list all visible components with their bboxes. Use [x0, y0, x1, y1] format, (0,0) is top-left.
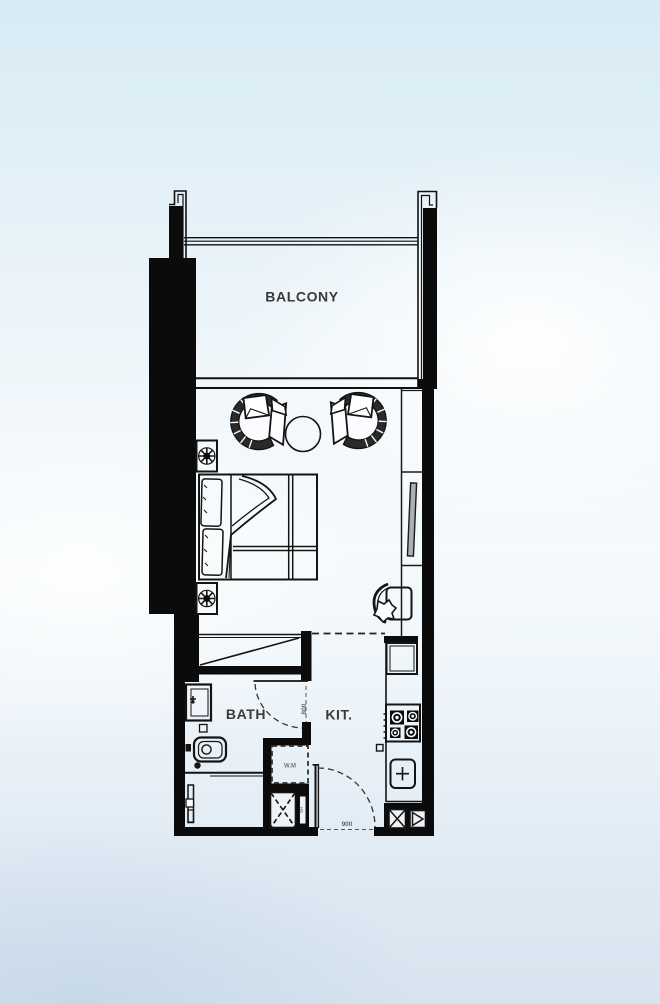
- svg-text:W.M: W.M: [284, 764, 296, 770]
- svg-text:800: 800: [301, 703, 308, 714]
- svg-text:SH: SH: [299, 807, 304, 813]
- svg-text:BATH: BATH: [226, 706, 266, 722]
- svg-text:BALCONY: BALCONY: [265, 289, 338, 305]
- svg-text:KIT.: KIT.: [325, 707, 352, 723]
- svg-text:900: 900: [342, 821, 353, 828]
